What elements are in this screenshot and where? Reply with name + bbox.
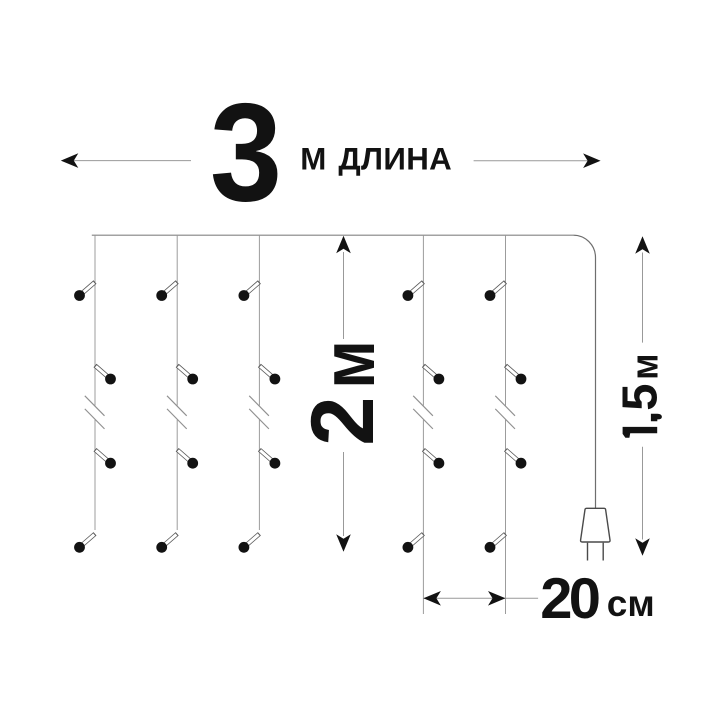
svg-text:м: м — [623, 354, 665, 380]
svg-text:м: м — [307, 340, 391, 389]
svg-text:см: см — [607, 583, 655, 624]
svg-text:20: 20 — [540, 567, 598, 631]
svg-text:5: 5 — [614, 383, 668, 410]
svg-text:ДЛИНА: ДЛИНА — [338, 142, 452, 177]
svg-text:3: 3 — [210, 74, 282, 230]
svg-text:М: М — [300, 142, 326, 177]
svg-text:2: 2 — [292, 396, 392, 446]
